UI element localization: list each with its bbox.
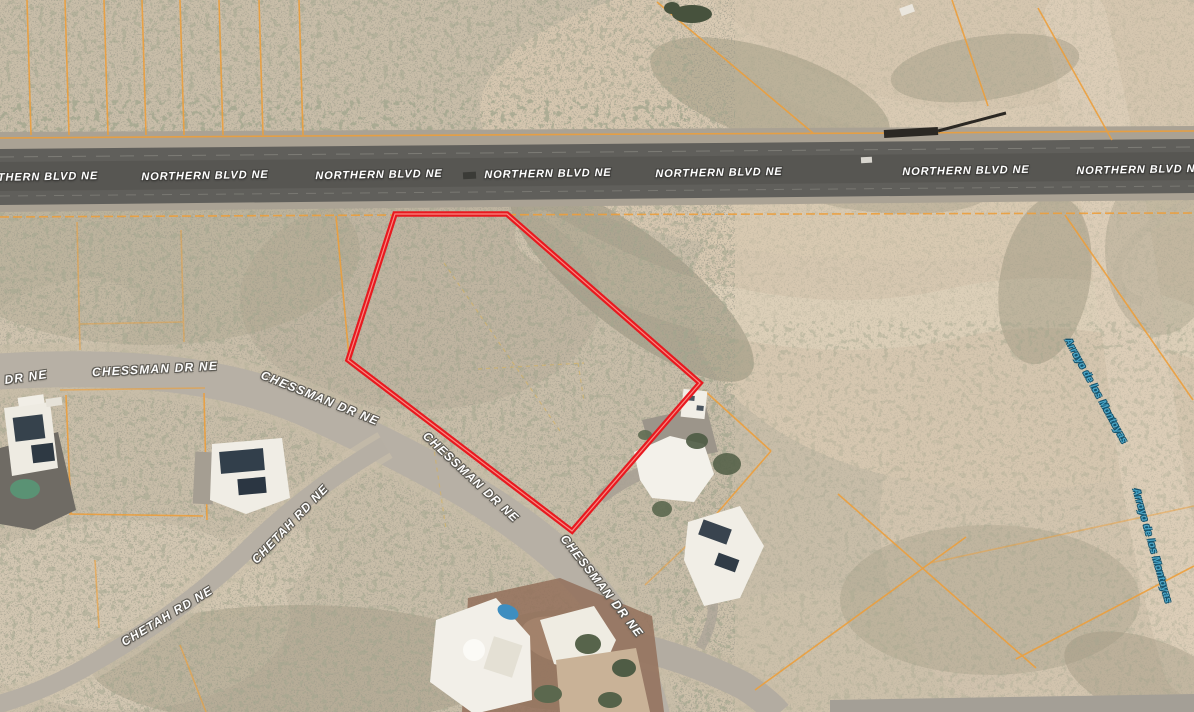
vehicle [861,157,872,164]
dark-wall [884,131,938,134]
satellite-imagery [0,0,1194,712]
vehicle [463,172,476,180]
green-pool [10,479,40,499]
vehicle [570,168,581,175]
map-canvas[interactable]: THERN BLVD NE NORTHERN BLVD NE NORTHERN … [0,0,1194,712]
